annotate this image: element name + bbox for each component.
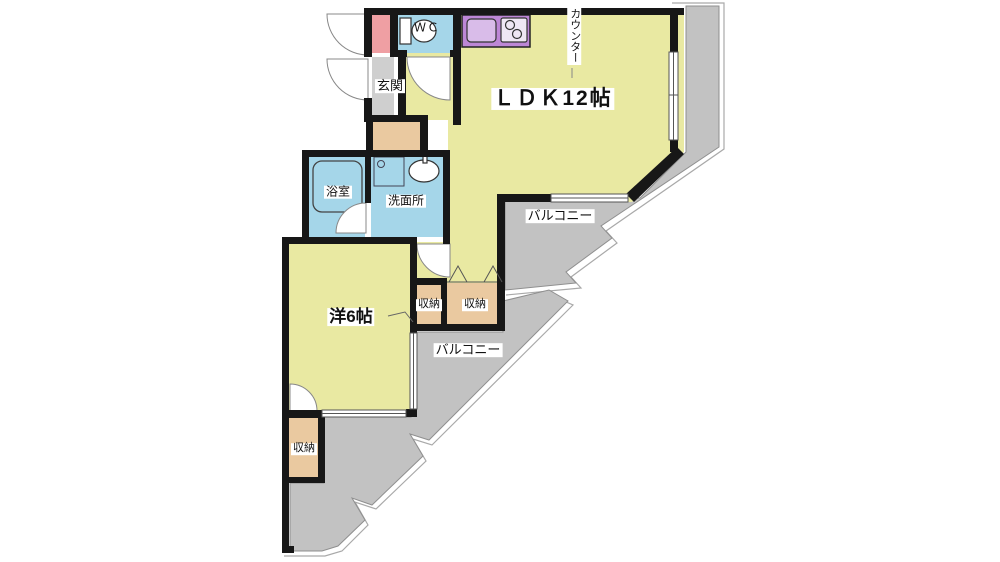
wall	[670, 15, 678, 52]
floorplan: ＬＤＫ12帖 洋6帖 玄関 ＷＣ 浴室 洗面所 カウンター バルコニー バルコニ…	[0, 0, 1000, 562]
wall	[282, 237, 289, 553]
wall	[282, 477, 325, 483]
window-ldk-east	[669, 52, 678, 140]
wall	[410, 324, 505, 331]
wall	[282, 546, 294, 553]
wall	[302, 150, 309, 243]
wall	[366, 120, 373, 153]
entrance-door-arc-2	[327, 59, 368, 100]
wall	[318, 411, 325, 483]
wall	[497, 194, 551, 202]
wall	[443, 150, 450, 244]
window-western-south	[322, 410, 406, 417]
shoe-cabinet	[372, 15, 390, 53]
wall	[364, 15, 372, 57]
wall	[497, 194, 505, 330]
western-room-floor	[289, 244, 410, 410]
room-label-washroom: 洗面所	[386, 195, 426, 208]
window-western-east	[410, 333, 417, 409]
toilet-tank	[400, 18, 411, 44]
label-storage-right: 収納	[462, 299, 488, 311]
wall	[302, 150, 450, 157]
hall-cabinet	[373, 122, 420, 152]
room-label-entrance: 玄関	[375, 79, 405, 93]
wall	[364, 115, 428, 122]
kitchen-sink	[467, 19, 496, 42]
label-storage-left: 収納	[416, 299, 442, 311]
wall	[420, 117, 428, 153]
wall	[365, 157, 371, 203]
room-label-western: 洋6帖	[327, 308, 374, 326]
label-balcony-upper: バルコニー	[526, 209, 595, 223]
wall	[406, 409, 417, 417]
wall	[364, 8, 684, 15]
entrance-door-arc-1	[327, 14, 368, 55]
label-counter: カウンター	[567, 6, 581, 65]
label-balcony-lower: バルコニー	[434, 343, 503, 357]
wall	[390, 8, 398, 54]
wall	[282, 237, 417, 244]
room-label-wc: ＷＣ	[412, 22, 442, 35]
wall	[453, 8, 461, 125]
room-label-ldk: ＬＤＫ12帖	[491, 88, 614, 110]
floorplan-drawing	[0, 0, 1000, 562]
label-storage-bottom: 収納	[291, 443, 317, 455]
room-label-bath: 浴室	[324, 186, 352, 199]
window-ldk-south	[551, 194, 628, 202]
